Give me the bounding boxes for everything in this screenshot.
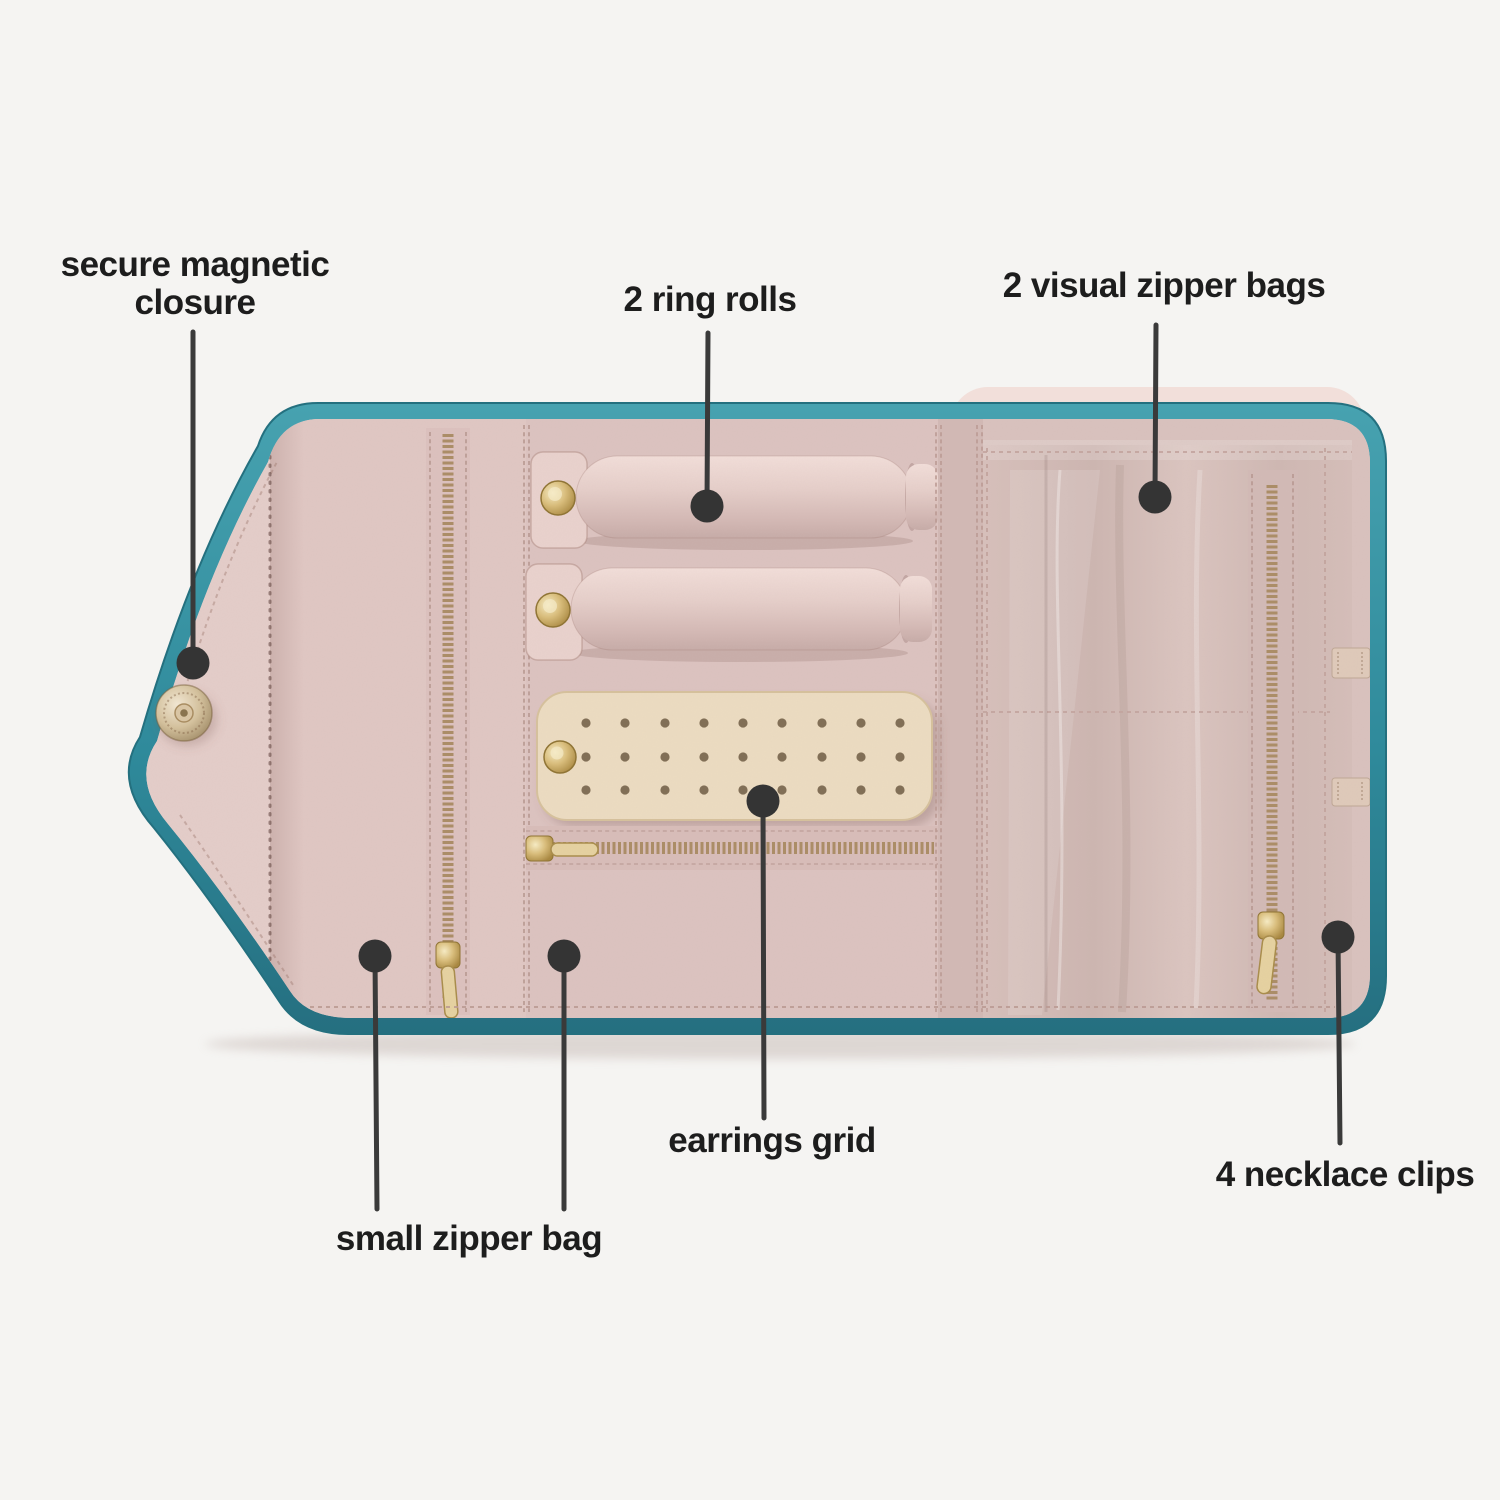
dot-small-zipper-bag-left bbox=[359, 940, 392, 973]
jewelry-organizer-illustration bbox=[0, 0, 1500, 1500]
dot-earrings-grid bbox=[747, 785, 780, 818]
dot-magnetic-closure bbox=[177, 647, 210, 680]
label-magnetic-closure: secure magnetic closure bbox=[35, 246, 355, 322]
label-earrings-grid: earrings grid bbox=[668, 1122, 875, 1160]
dot-necklace-clips bbox=[1322, 921, 1355, 954]
label-necklace-clips: 4 necklace clips bbox=[1216, 1156, 1475, 1194]
dot-small-zipper-bag-right bbox=[548, 940, 581, 973]
label-visual-zipper-bags: 2 visual zipper bags bbox=[1003, 267, 1326, 305]
product-annotation-image: secure magnetic closure 2 ring rolls 2 v… bbox=[0, 0, 1500, 1500]
label-small-zipper-bag: small zipper bag bbox=[336, 1220, 602, 1258]
label-ring-rolls: 2 ring rolls bbox=[624, 281, 797, 319]
dot-visual-zipper-bags bbox=[1139, 481, 1172, 514]
dot-ring-rolls bbox=[691, 490, 724, 523]
